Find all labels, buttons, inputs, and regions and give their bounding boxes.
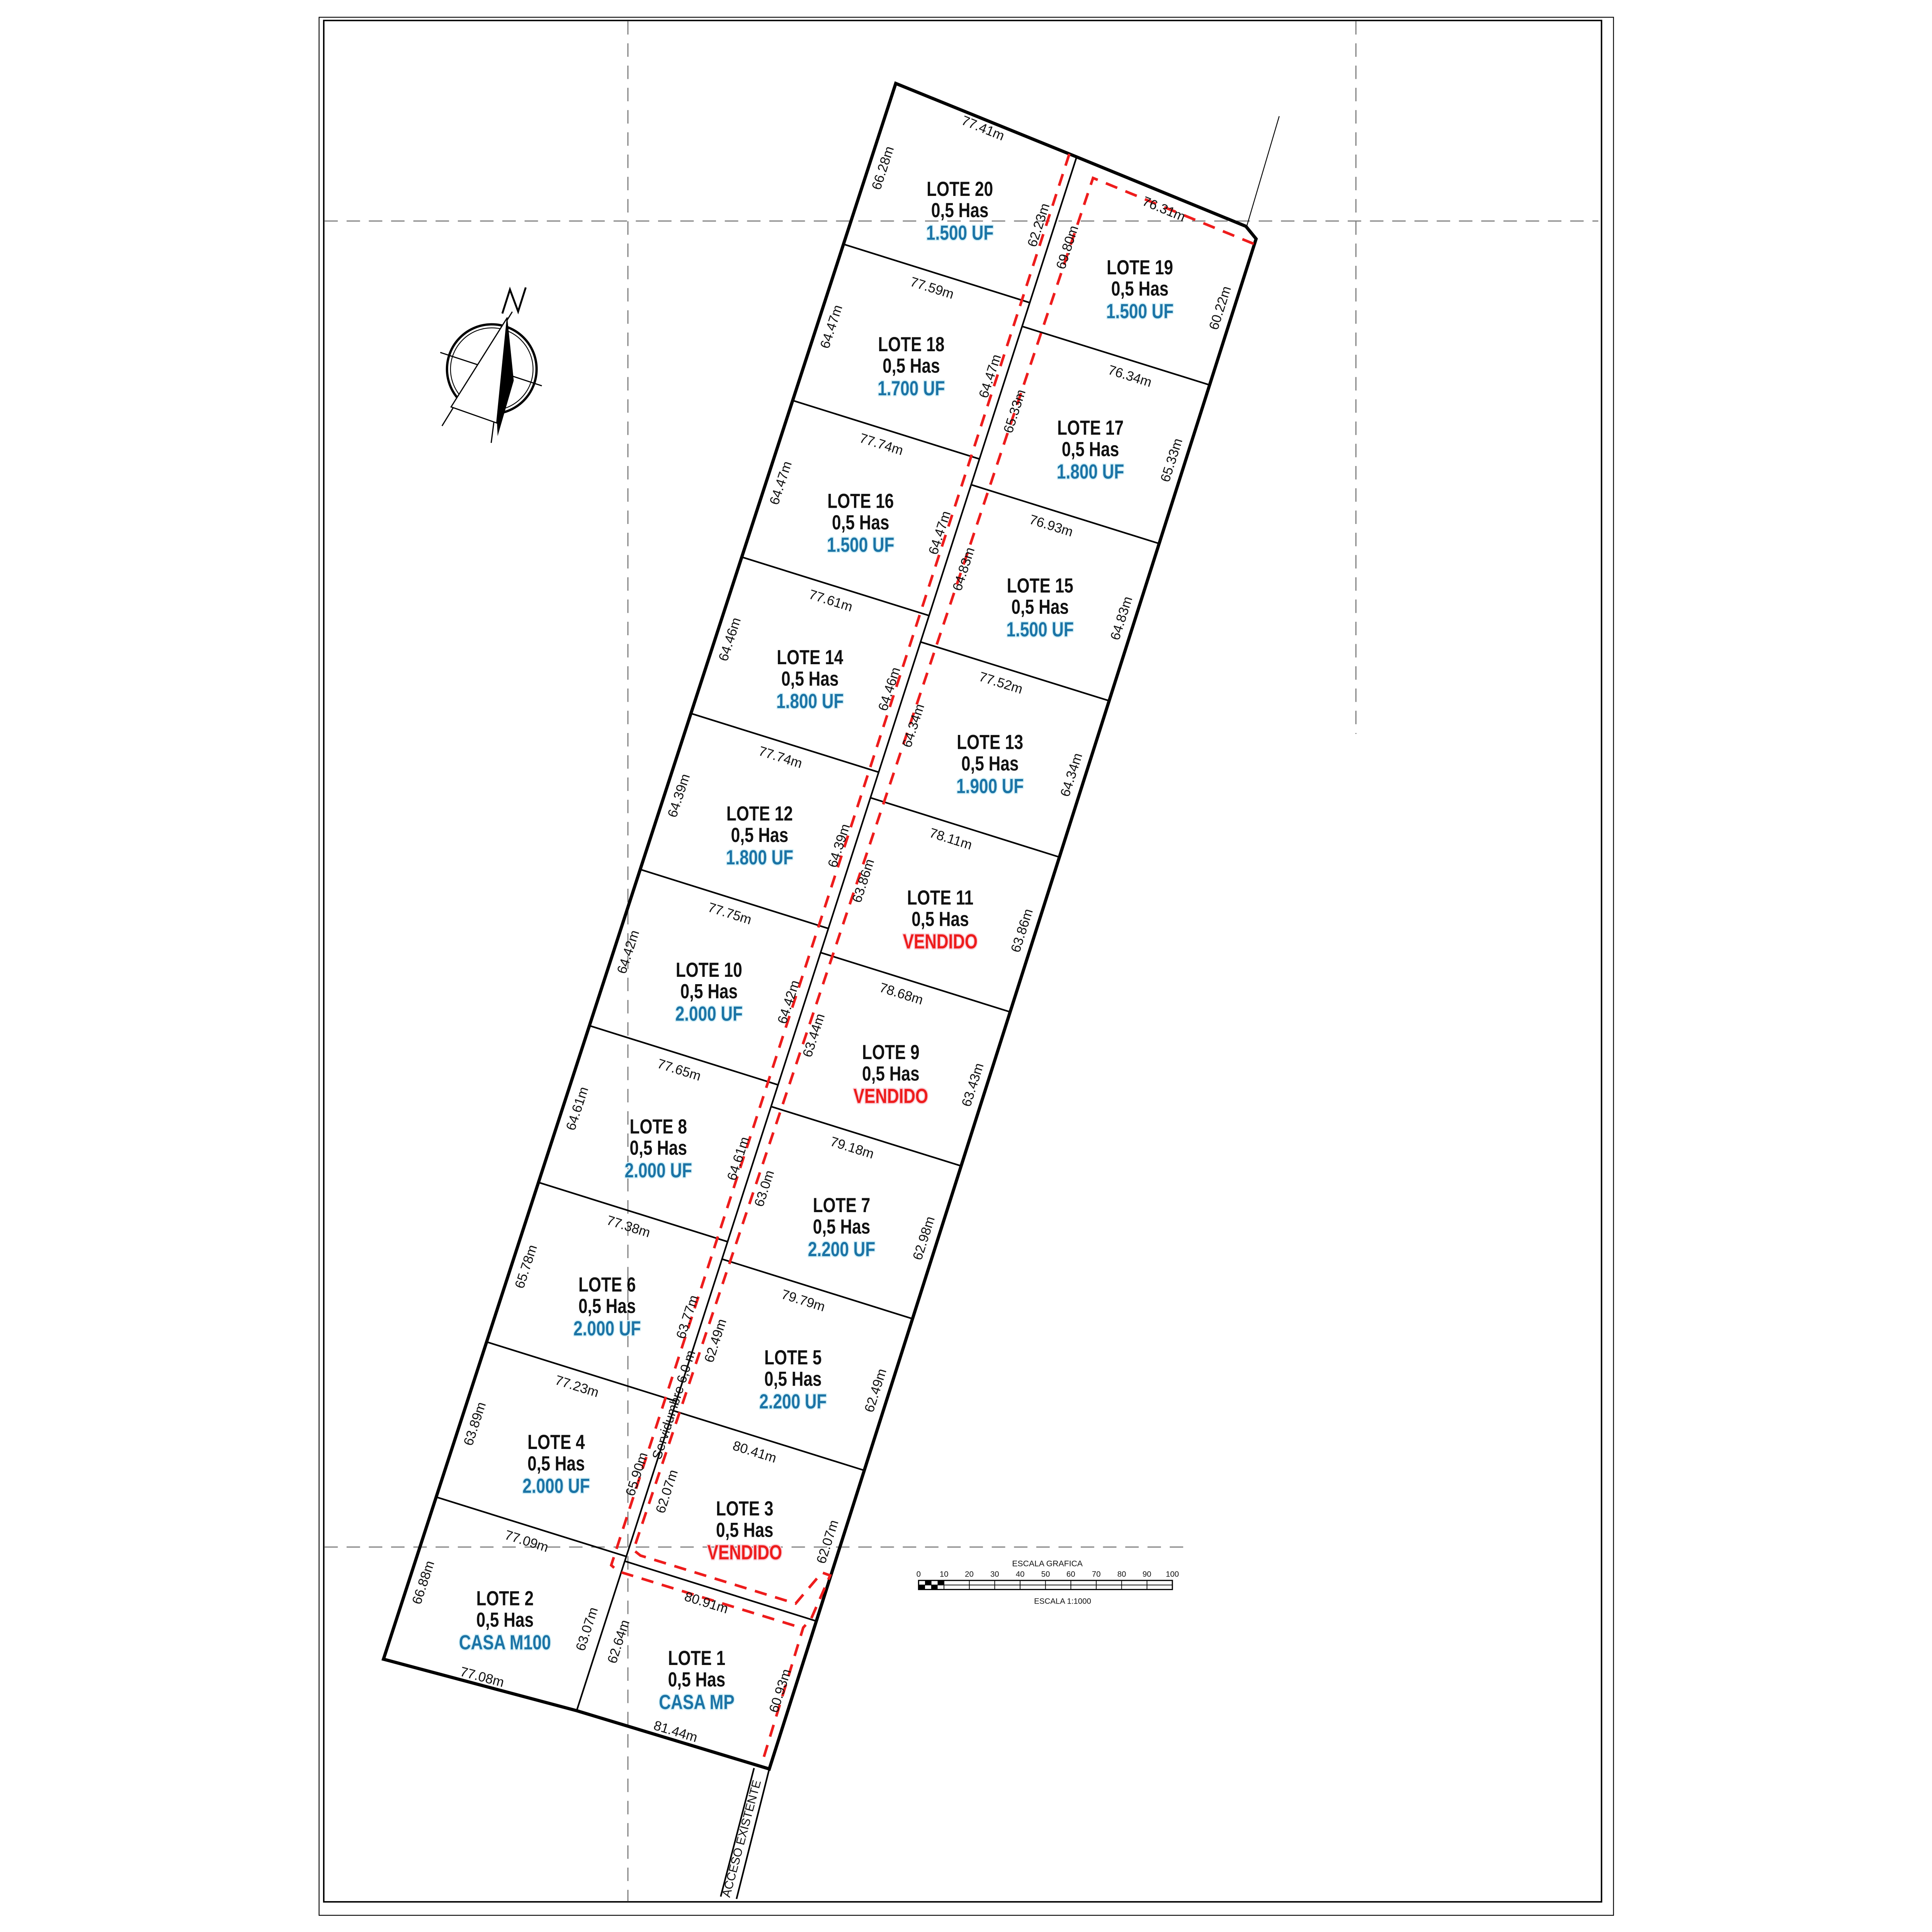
svg-text:0,5 Has: 0,5 Has — [912, 908, 969, 930]
svg-text:0,5 Has: 0,5 Has — [731, 824, 788, 847]
svg-text:30: 30 — [990, 1570, 999, 1579]
svg-text:1.500 UF: 1.500 UF — [1106, 300, 1173, 323]
svg-text:80: 80 — [1117, 1570, 1126, 1579]
svg-text:2.000 UF: 2.000 UF — [573, 1317, 641, 1340]
svg-text:0,5 Has: 0,5 Has — [764, 1367, 821, 1390]
svg-text:LOTE 3: LOTE 3 — [716, 1497, 773, 1520]
svg-text:CASA M100: CASA M100 — [459, 1631, 551, 1654]
svg-text:0,5 Has: 0,5 Has — [1062, 438, 1119, 461]
svg-text:1.500 UF: 1.500 UF — [926, 222, 993, 245]
svg-text:40: 40 — [1016, 1570, 1025, 1579]
svg-text:0,5 Has: 0,5 Has — [781, 667, 838, 690]
svg-text:LOTE 12: LOTE 12 — [726, 803, 793, 825]
svg-text:0,5 Has: 0,5 Has — [1011, 596, 1068, 619]
svg-text:LOTE 18: LOTE 18 — [878, 333, 944, 356]
svg-text:100: 100 — [1166, 1570, 1179, 1579]
svg-text:0,5 Has: 0,5 Has — [716, 1519, 773, 1541]
svg-text:1.500 UF: 1.500 UF — [827, 534, 894, 556]
svg-text:LOTE 17: LOTE 17 — [1057, 417, 1124, 439]
svg-text:0,5 Has: 0,5 Has — [527, 1452, 585, 1475]
svg-text:90: 90 — [1143, 1570, 1151, 1579]
svg-text:1.700 UF: 1.700 UF — [878, 377, 945, 400]
svg-text:1.800 UF: 1.800 UF — [726, 846, 793, 869]
svg-text:0,5 Has: 0,5 Has — [668, 1668, 725, 1691]
svg-text:VENDIDO: VENDIDO — [903, 930, 978, 953]
svg-text:LOTE 6: LOTE 6 — [578, 1274, 636, 1296]
svg-text:50: 50 — [1041, 1570, 1050, 1579]
svg-text:0,5 Has: 0,5 Has — [476, 1609, 534, 1631]
svg-text:20: 20 — [965, 1570, 974, 1579]
svg-text:LOTE 11: LOTE 11 — [907, 886, 973, 909]
svg-text:LOTE 9: LOTE 9 — [862, 1041, 919, 1064]
svg-text:0,5 Has: 0,5 Has — [862, 1062, 919, 1085]
svg-text:LOTE 4: LOTE 4 — [527, 1431, 585, 1454]
svg-text:LOTE 2: LOTE 2 — [476, 1587, 534, 1610]
svg-text:LOTE 10: LOTE 10 — [676, 959, 742, 981]
svg-text:0,5 Has: 0,5 Has — [578, 1295, 636, 1318]
svg-text:VENDIDO: VENDIDO — [854, 1085, 928, 1108]
svg-text:1.800 UF: 1.800 UF — [776, 690, 844, 713]
svg-text:VENDIDO: VENDIDO — [707, 1541, 782, 1564]
svg-text:60: 60 — [1066, 1570, 1075, 1579]
svg-text:0,5 Has: 0,5 Has — [883, 354, 940, 377]
svg-text:ESCALA GRAFICA: ESCALA GRAFICA — [1012, 1559, 1083, 1568]
svg-text:2.000 UF: 2.000 UF — [625, 1159, 692, 1182]
svg-text:2.200 UF: 2.200 UF — [808, 1238, 875, 1261]
svg-text:CASA MP: CASA MP — [659, 1691, 734, 1714]
svg-text:LOTE 15: LOTE 15 — [1007, 574, 1073, 597]
svg-text:2.000 UF: 2.000 UF — [522, 1475, 590, 1498]
svg-text:10: 10 — [940, 1570, 949, 1579]
svg-text:LOTE 13: LOTE 13 — [957, 731, 1023, 754]
svg-text:LOTE 8: LOTE 8 — [630, 1115, 687, 1138]
svg-text:2.000 UF: 2.000 UF — [675, 1003, 743, 1026]
svg-text:0: 0 — [917, 1570, 921, 1579]
svg-text:0,5 Has: 0,5 Has — [961, 752, 1019, 775]
svg-text:1.800 UF: 1.800 UF — [1057, 461, 1124, 483]
svg-text:0,5 Has: 0,5 Has — [813, 1216, 870, 1238]
svg-text:LOTE 16: LOTE 16 — [827, 490, 894, 512]
svg-text:0,5 Has: 0,5 Has — [931, 199, 988, 222]
svg-text:2.200 UF: 2.200 UF — [759, 1390, 827, 1413]
svg-text:LOTE 1: LOTE 1 — [668, 1647, 725, 1670]
svg-text:0,5 Has: 0,5 Has — [1111, 277, 1168, 300]
svg-text:1.900 UF: 1.900 UF — [956, 775, 1024, 798]
svg-text:70: 70 — [1092, 1570, 1101, 1579]
svg-text:LOTE 20: LOTE 20 — [927, 178, 993, 201]
svg-text:0,5 Has: 0,5 Has — [630, 1137, 687, 1160]
svg-text:LOTE 5: LOTE 5 — [764, 1346, 821, 1369]
svg-text:1.500 UF: 1.500 UF — [1007, 618, 1074, 641]
svg-text:LOTE 19: LOTE 19 — [1107, 256, 1173, 279]
svg-text:0,5 Has: 0,5 Has — [832, 511, 889, 534]
svg-text:LOTE 7: LOTE 7 — [813, 1194, 870, 1217]
svg-text:ESCALA 1:1000: ESCALA 1:1000 — [1034, 1597, 1091, 1605]
svg-text:0,5 Has: 0,5 Has — [680, 980, 738, 1003]
svg-text:LOTE 14: LOTE 14 — [777, 646, 843, 669]
